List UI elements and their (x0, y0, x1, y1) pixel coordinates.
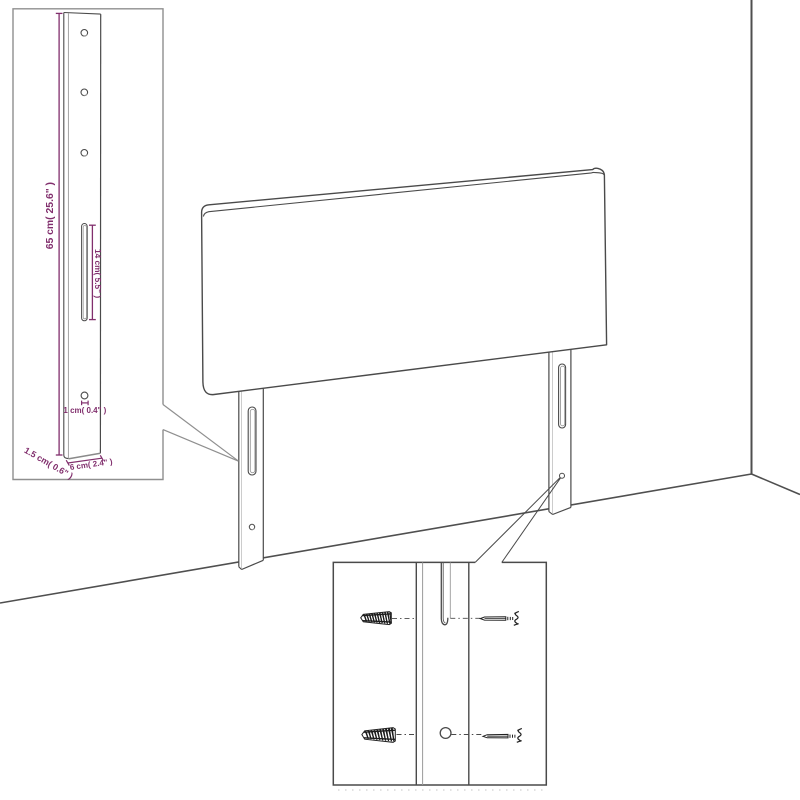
svg-text:65 cm( 25.6" ): 65 cm( 25.6" ) (45, 182, 56, 249)
svg-text:1 cm( 0.4" ): 1 cm( 0.4" ) (63, 406, 106, 415)
svg-text:14 cm( 5.5" ): 14 cm( 5.5" ) (93, 249, 103, 298)
